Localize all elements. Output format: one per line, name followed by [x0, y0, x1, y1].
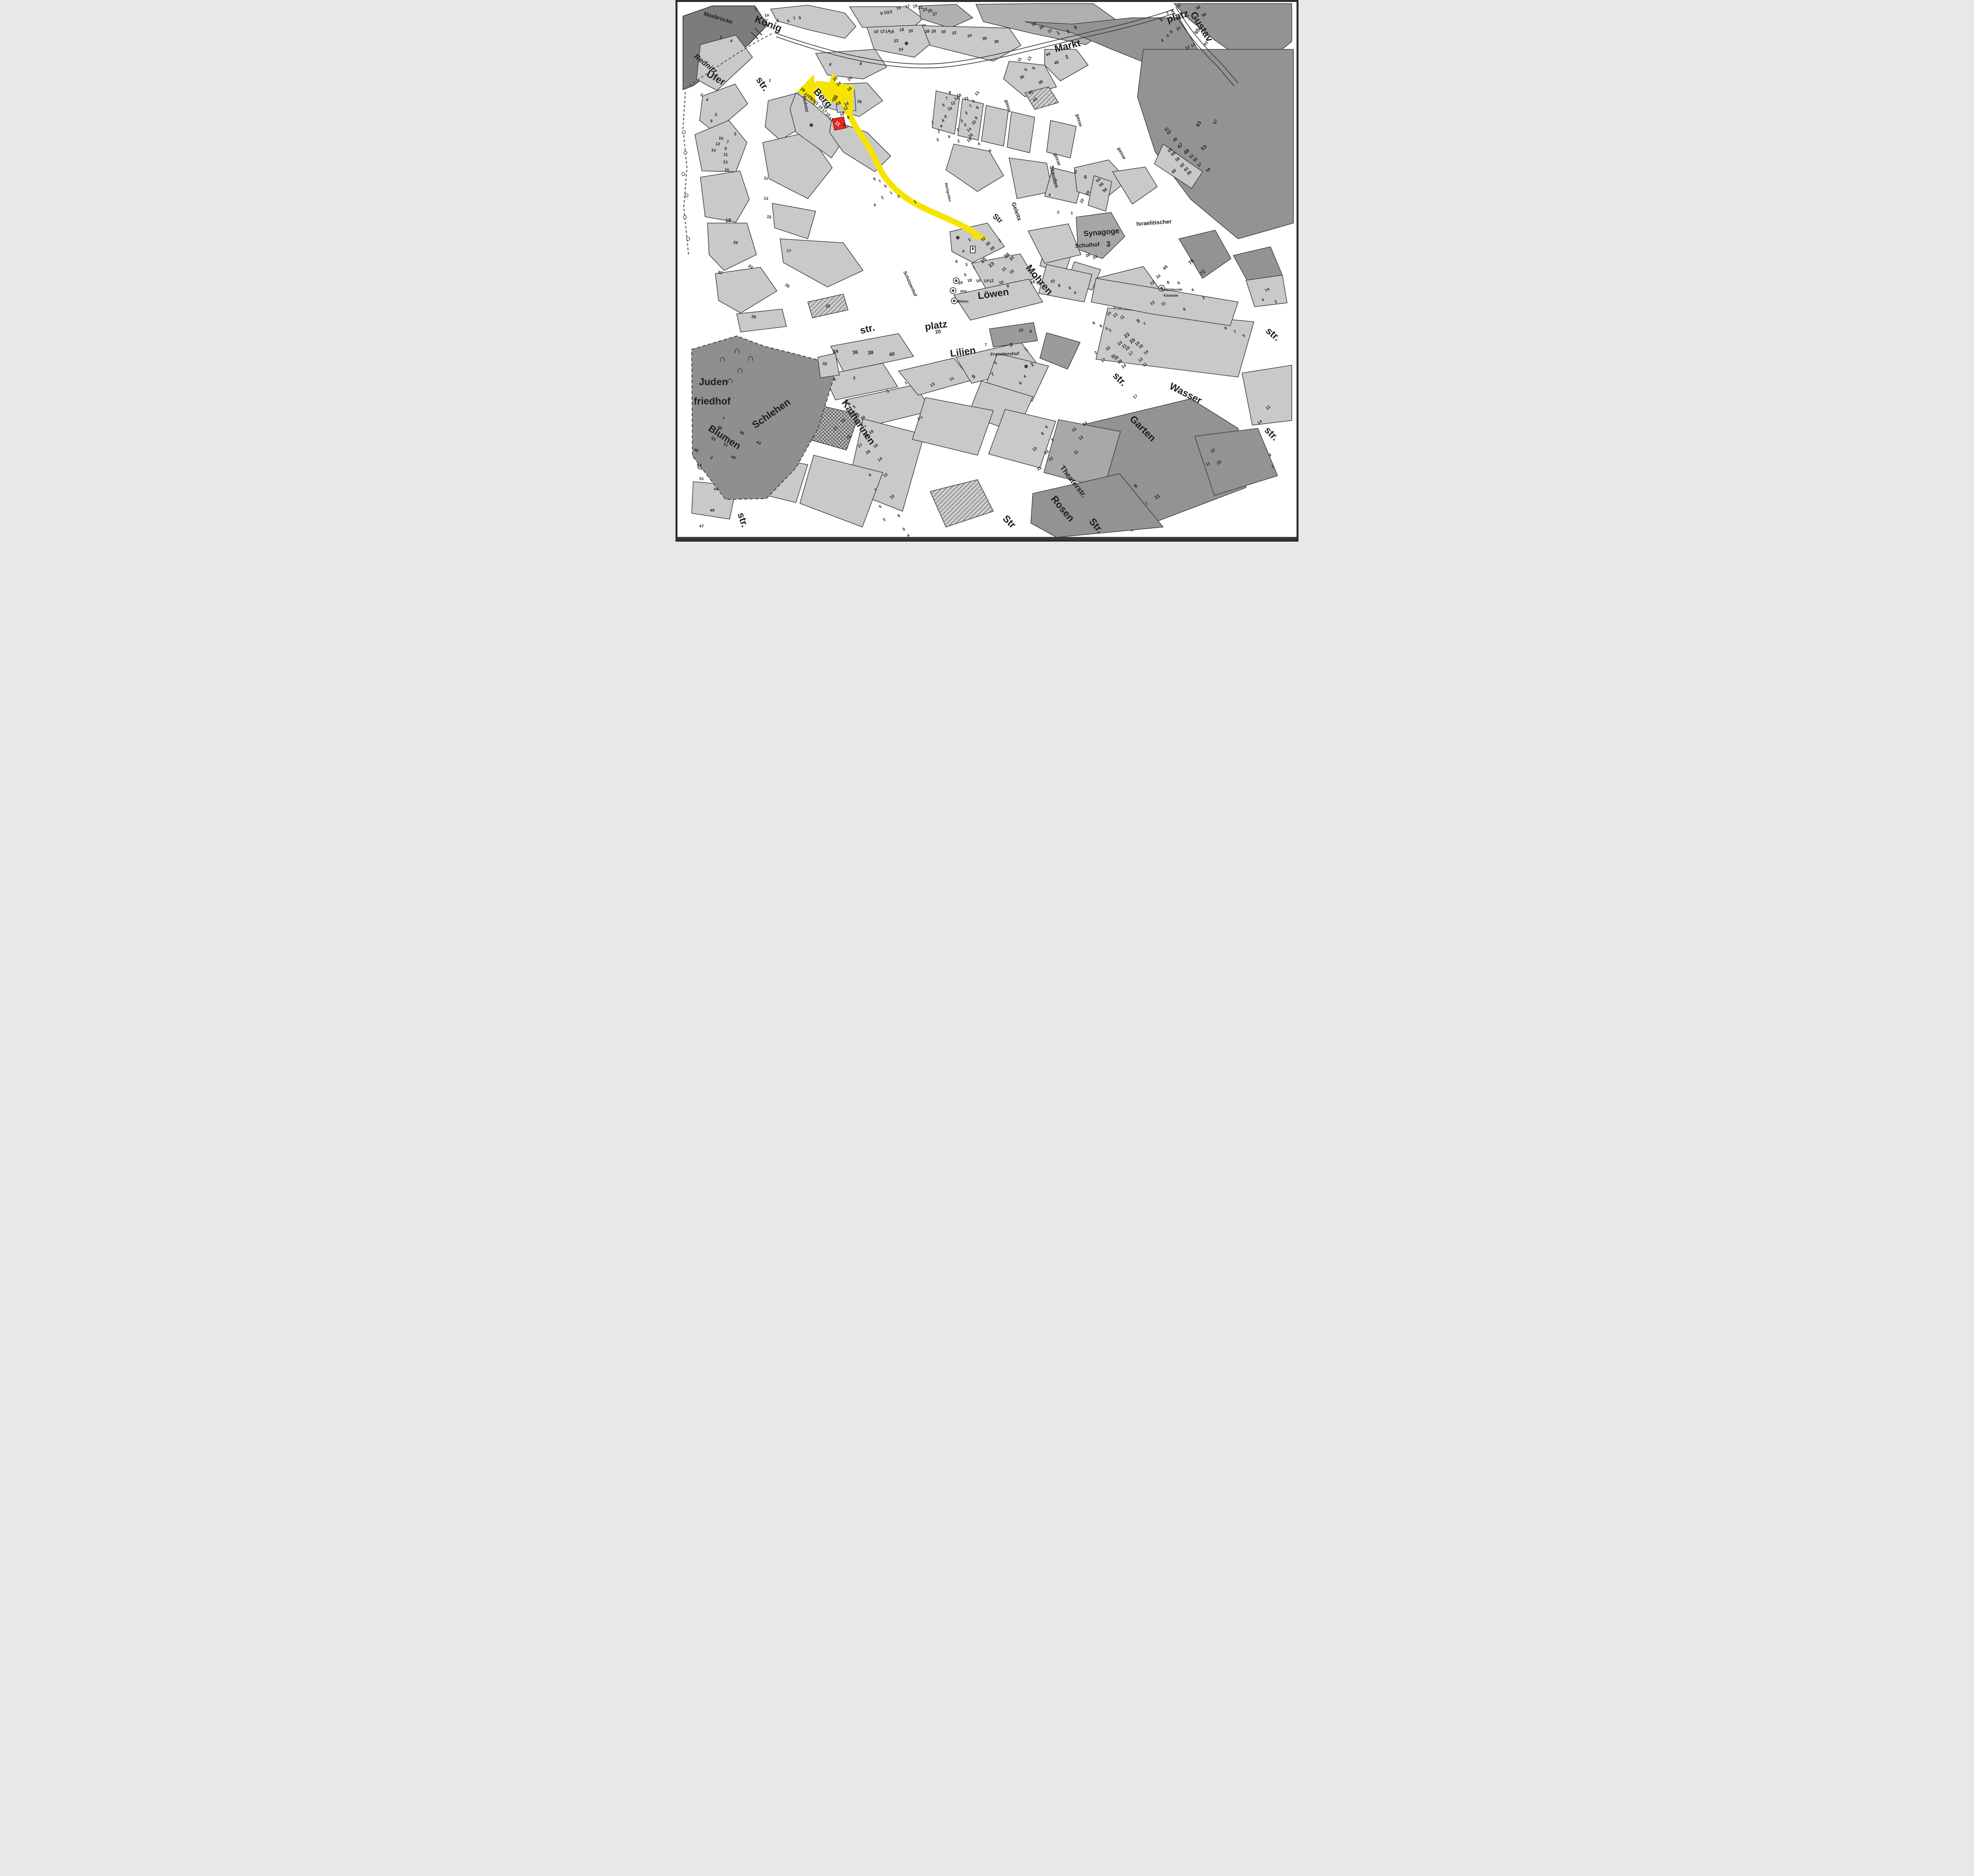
scan-edge-bar — [677, 537, 1297, 540]
city-map[interactable]: 11a3579911131517192123252710121416182022… — [676, 0, 1298, 542]
highlighted-building-11 — [832, 117, 846, 130]
map-base-graphics — [677, 2, 1297, 540]
